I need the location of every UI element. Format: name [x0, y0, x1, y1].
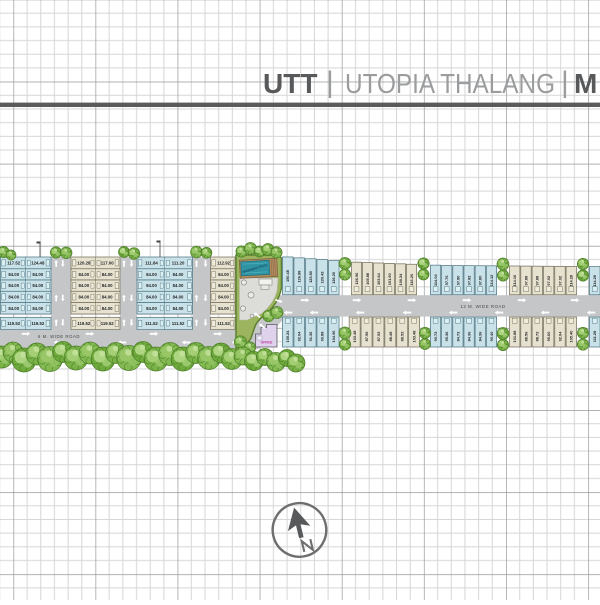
svg-text:84.00: 84.00 — [32, 306, 43, 311]
svg-text:126.20: 126.20 — [331, 272, 336, 284]
svg-text:UTOPIA THALANG: UTOPIA THALANG — [345, 68, 555, 99]
svg-text:99.72: 99.72 — [433, 331, 438, 342]
svg-text:117.00: 117.00 — [101, 260, 115, 265]
svg-text:87.96: 87.96 — [364, 331, 369, 342]
svg-text:105.88: 105.88 — [365, 272, 370, 285]
svg-text:84.00: 84.00 — [173, 306, 184, 311]
svg-text:99.40: 99.40 — [489, 332, 494, 342]
svg-text:88.48: 88.48 — [388, 331, 393, 342]
svg-text:97.88: 97.88 — [523, 275, 528, 286]
svg-text:150.48: 150.48 — [285, 269, 290, 282]
svg-text:84.00: 84.00 — [102, 283, 113, 288]
svg-text:114.16: 114.16 — [512, 274, 517, 287]
svg-text:111.52: 111.52 — [172, 321, 185, 326]
svg-text:99.88: 99.88 — [320, 331, 325, 342]
svg-text:123.80: 123.80 — [308, 271, 313, 283]
svg-text:84.00: 84.00 — [146, 306, 157, 311]
svg-text:84.00: 84.00 — [78, 283, 89, 288]
svg-text:84.72: 84.72 — [455, 331, 460, 342]
svg-text:97.80: 97.80 — [455, 276, 460, 286]
svg-text:117.52: 117.52 — [7, 260, 21, 265]
svg-text:119.52: 119.52 — [101, 321, 115, 326]
svg-text:84.00: 84.00 — [218, 272, 229, 277]
svg-text:103.48: 103.48 — [352, 330, 357, 343]
svg-text:105.40: 105.40 — [569, 331, 574, 343]
svg-text:126.88: 126.88 — [297, 270, 302, 283]
svg-text:84.00: 84.00 — [8, 294, 19, 299]
svg-text:92.04: 92.04 — [297, 331, 302, 342]
svg-text:84.00: 84.00 — [8, 272, 19, 277]
svg-text:12 M. WIDE ROAD: 12 M. WIDE ROAD — [460, 304, 505, 309]
svg-text:111.84: 111.84 — [145, 260, 158, 265]
svg-text:88.72: 88.72 — [535, 331, 540, 342]
svg-text:101.88: 101.88 — [512, 330, 517, 343]
svg-text:103.48: 103.48 — [412, 330, 417, 343]
svg-text:119.52: 119.52 — [31, 321, 45, 326]
svg-text:114.04: 114.04 — [433, 273, 438, 286]
svg-text:119.52: 119.52 — [77, 321, 91, 326]
svg-text:|: | — [561, 66, 569, 99]
svg-text:91.36: 91.36 — [308, 331, 313, 342]
svg-text:88.52: 88.52 — [400, 331, 405, 342]
svg-text:111.28: 111.28 — [592, 330, 597, 342]
svg-text:124.48: 124.48 — [31, 260, 45, 265]
svg-text:112.92: 112.92 — [217, 260, 231, 265]
svg-text:84.36: 84.36 — [478, 331, 483, 342]
svg-text:95.36: 95.36 — [444, 331, 449, 342]
svg-text:84.36: 84.36 — [467, 331, 472, 342]
svg-text:84.00: 84.00 — [218, 306, 229, 311]
svg-text:84.00: 84.00 — [218, 294, 229, 299]
svg-text:97.76: 97.76 — [444, 275, 449, 286]
svg-text:101.90: 101.90 — [387, 273, 392, 285]
svg-text:84.00: 84.00 — [173, 272, 184, 277]
svg-text:84.00: 84.00 — [146, 283, 157, 288]
svg-text:114.28: 114.28 — [569, 274, 574, 287]
svg-text:84.00: 84.00 — [8, 306, 19, 311]
svg-text:97.88: 97.88 — [535, 275, 540, 286]
svg-text:OFFICE: OFFICE — [261, 341, 273, 345]
svg-text:84.00: 84.00 — [8, 283, 19, 288]
svg-text:84.00: 84.00 — [78, 306, 89, 311]
svg-text:84.00: 84.00 — [32, 283, 43, 288]
svg-text:88.56: 88.56 — [523, 331, 528, 342]
svg-text:84.00: 84.00 — [102, 294, 113, 299]
svg-text:126.96: 126.96 — [354, 272, 359, 285]
svg-text:6 M. WIDE ROAD: 6 M. WIDE ROAD — [38, 334, 80, 339]
svg-text:114.28: 114.28 — [592, 274, 597, 287]
svg-text:111.20: 111.20 — [172, 260, 185, 265]
svg-text:84.00: 84.00 — [78, 272, 89, 277]
svg-text:87.52: 87.52 — [376, 331, 381, 342]
svg-text:84.00: 84.00 — [173, 283, 184, 288]
svg-text:103.64: 103.64 — [376, 272, 381, 285]
svg-text:84.00: 84.00 — [32, 272, 43, 277]
svg-text:UTT: UTT — [263, 68, 317, 99]
svg-text:111.52: 111.52 — [217, 321, 230, 326]
svg-text:84.00: 84.00 — [173, 294, 184, 299]
svg-text:104.96: 104.96 — [331, 330, 336, 343]
svg-text:84.00: 84.00 — [102, 306, 113, 311]
svg-text:84.00: 84.00 — [146, 294, 157, 299]
svg-text:100.24: 100.24 — [398, 273, 403, 286]
svg-text:114.12: 114.12 — [489, 274, 494, 287]
svg-text:84.00: 84.00 — [146, 272, 157, 277]
svg-text:97.92: 97.92 — [546, 275, 551, 286]
svg-text:120.42: 120.42 — [320, 271, 325, 284]
svg-text:95.60: 95.60 — [546, 332, 551, 342]
svg-text:84.00: 84.00 — [78, 294, 89, 299]
svg-text:84.00: 84.00 — [102, 272, 113, 277]
svg-text:119.52: 119.52 — [7, 321, 21, 326]
svg-text:97.82: 97.82 — [467, 275, 472, 286]
svg-text:84.00: 84.00 — [218, 283, 229, 288]
svg-text:M: M — [574, 68, 597, 99]
svg-text:116.20: 116.20 — [409, 274, 414, 286]
svg-text:84.00: 84.00 — [32, 294, 43, 299]
svg-text:97.80: 97.80 — [478, 276, 483, 286]
svg-text:97.92: 97.92 — [557, 275, 562, 286]
svg-text:92.04: 92.04 — [557, 331, 562, 342]
svg-text:105.24: 105.24 — [285, 330, 290, 343]
svg-text:|: | — [326, 66, 334, 99]
svg-text:120.28: 120.28 — [77, 260, 91, 265]
svg-text:111.52: 111.52 — [145, 321, 158, 326]
